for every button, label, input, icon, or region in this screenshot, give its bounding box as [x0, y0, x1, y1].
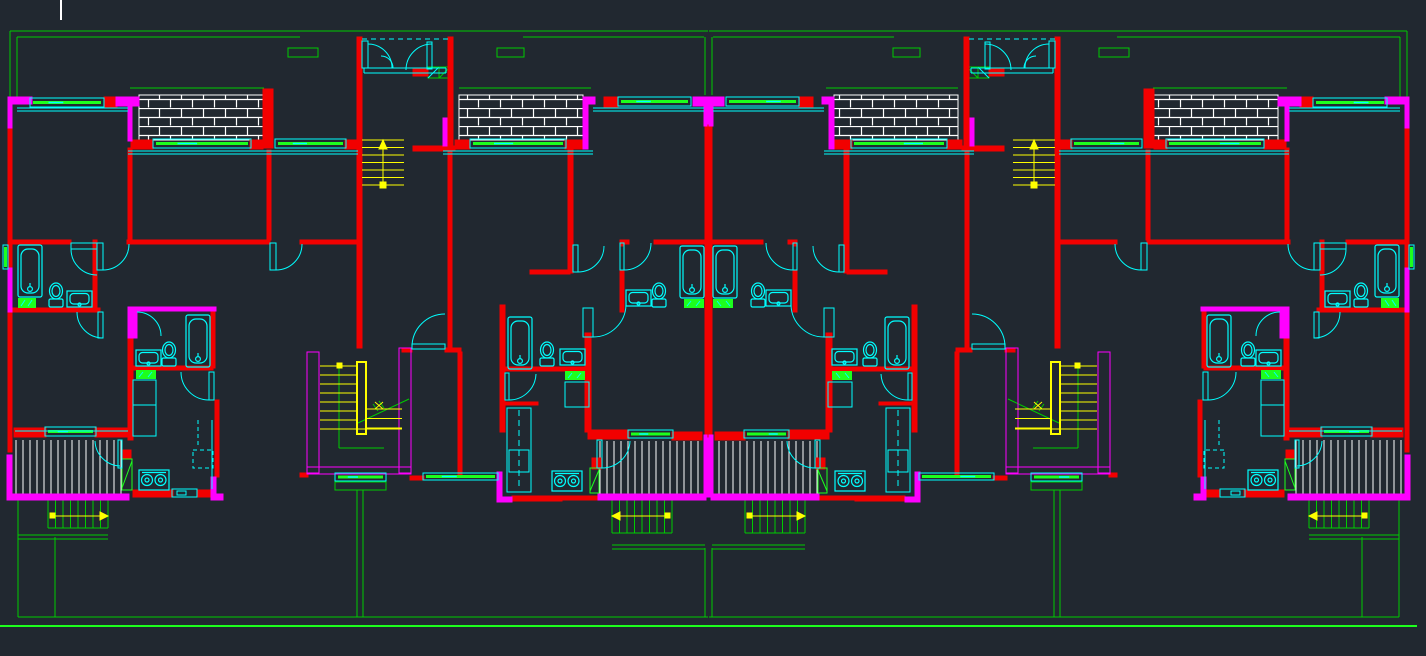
bath-mat — [136, 370, 156, 379]
walls-red-r — [505, 402, 538, 405]
walls-magenta-r — [128, 310, 137, 338]
doors-cyan-r — [573, 245, 578, 272]
windows-cyan-window — [628, 430, 673, 438]
doors-cyan-r — [98, 312, 103, 338]
bath-mat — [565, 371, 585, 380]
walls-magenta-r — [704, 435, 708, 497]
stove-fixture — [139, 470, 169, 490]
walls-magenta-r — [7, 455, 12, 499]
doors-cyan-p — [103, 244, 129, 270]
walls-red-r — [500, 305, 505, 432]
walls-red-r — [357, 37, 362, 348]
sink-fixture — [626, 290, 651, 306]
windows-cyan-window — [30, 98, 104, 107]
doors-cyan-p — [181, 372, 209, 400]
walls-red-r — [530, 270, 570, 274]
doors-cyan-p — [368, 44, 392, 68]
building-left-half — [0, 31, 709, 626]
sink-fixture — [67, 291, 92, 307]
walls-red-r — [263, 89, 273, 148]
walls-red-r — [620, 270, 624, 312]
site-boundary-green-r — [288, 48, 318, 57]
stove-fixture — [552, 471, 582, 491]
walls-red-r — [448, 148, 452, 348]
stairs-yellow-r — [665, 513, 670, 518]
walls-magenta-r — [8, 268, 12, 312]
walls-magenta-r — [8, 104, 12, 128]
hatch-patterns-hatch — [16, 440, 121, 494]
toilet-fixture — [49, 283, 63, 307]
cad-model-space-viewport[interactable] — [0, 0, 1426, 656]
walls-red-r — [10, 240, 71, 244]
walls-magenta-r — [128, 106, 132, 141]
walls-red-r — [455, 140, 470, 149]
layer-site-boundary-green — [0, 31, 709, 626]
walls-magenta-r — [583, 97, 588, 149]
stairs-yellow-r — [337, 363, 342, 368]
walls-magenta-r — [497, 497, 512, 502]
site-boundary-green-r — [497, 48, 524, 57]
walls-red-r — [512, 496, 562, 501]
walls-magenta-r — [693, 97, 709, 106]
walls-red-r — [8, 308, 100, 312]
mat-fill — [565, 371, 585, 380]
bath-mat — [684, 299, 704, 308]
walls-red-r — [14, 428, 46, 437]
walls-red-r — [560, 496, 598, 500]
walls-red-r — [445, 348, 461, 352]
walls-red-r — [448, 37, 453, 149]
stairs-yellow-p — [379, 140, 387, 149]
sink-fixture — [136, 350, 161, 366]
doors-cyan-r — [270, 243, 276, 270]
walls-magenta-r — [7, 494, 129, 500]
brick-hatch-balcony — [459, 95, 583, 140]
doors-cyan-p — [624, 243, 651, 270]
fixtures-cyan-r — [133, 380, 156, 405]
fixtures-cyan-l — [590, 470, 599, 491]
doors-cyan-r — [362, 41, 368, 68]
toilet-fixture — [652, 283, 666, 307]
doors-cyan-r — [620, 243, 624, 270]
walls-red-r — [127, 240, 270, 244]
fixtures-cyan-l — [122, 461, 132, 488]
bath-mat — [18, 298, 36, 308]
floor-plan-canvas[interactable] — [0, 0, 1426, 656]
windows-cyan-window — [618, 97, 691, 106]
mat-fill — [18, 298, 36, 308]
walls-red-r — [250, 140, 263, 149]
doors-cyan-r — [97, 243, 103, 270]
walls-red-r — [565, 140, 584, 149]
walls-magenta-r — [583, 97, 595, 104]
doors-cyan-p — [137, 312, 161, 336]
walls-magenta-r — [598, 494, 706, 500]
stairs-yellow-p — [612, 512, 620, 520]
walls-red-r — [654, 240, 707, 244]
stairs-yellow-r — [50, 513, 55, 518]
walls-red-r — [458, 352, 462, 476]
walls-magenta-r — [704, 106, 708, 126]
doors-cyan-p — [77, 312, 103, 338]
tub-fixture — [186, 315, 210, 367]
walls-magenta-r — [128, 307, 216, 311]
mat-fill — [136, 370, 156, 379]
walls-red-r — [128, 148, 132, 240]
fixtures-cyan-r — [193, 450, 213, 468]
doors-cyan-p — [406, 44, 432, 70]
stairs-yellow-p — [100, 512, 108, 520]
toilet-fixture — [162, 342, 176, 366]
tub-fixture — [680, 246, 704, 298]
doors-cyan-p — [381, 56, 393, 68]
site-boundary-green-r — [335, 482, 386, 490]
hatch-patterns-hatch — [600, 441, 698, 494]
windows-cyan-window — [275, 139, 346, 148]
mat-fill — [684, 299, 704, 308]
walls-red-r — [211, 310, 215, 368]
walls-red-r — [413, 68, 428, 76]
tub-fixture — [18, 245, 42, 297]
doors-cyan-r — [412, 344, 445, 349]
walls-magenta-r — [399, 348, 411, 473]
sink-fixture — [560, 349, 585, 365]
walls-magenta-r — [211, 494, 223, 500]
walls-red-r — [604, 97, 618, 107]
walls-red-r — [104, 97, 117, 107]
walls-red-r — [300, 240, 358, 244]
fixtures-cyan-r — [172, 489, 197, 497]
fixtures-cyan-r — [133, 405, 156, 436]
brick-hatch-balcony — [139, 95, 263, 140]
doors-cyan-p — [509, 374, 536, 400]
walls-red-r — [410, 476, 424, 480]
walls-magenta-r — [443, 118, 447, 146]
stairs-yellow-r — [380, 182, 386, 188]
doors-cyan-p — [412, 314, 445, 347]
tub-fixture — [508, 317, 532, 369]
walls-red-r — [131, 140, 153, 149]
walls-red-r — [568, 150, 573, 273]
doors-cyan-r — [427, 42, 432, 69]
walls-red-r — [588, 430, 629, 439]
walls-red-r — [95, 428, 133, 437]
walls-magenta-r — [307, 352, 319, 473]
doors-cyan-p — [578, 246, 604, 272]
doors-cyan-r — [209, 372, 214, 400]
walls-red-r — [345, 140, 358, 149]
building-right-half-mirrored — [708, 31, 1417, 626]
walls-red-r — [215, 400, 219, 477]
walls-red-r — [122, 450, 131, 459]
walls-red-r — [267, 150, 271, 240]
doors-cyan-p — [276, 244, 302, 270]
fixtures-cyan-r — [177, 491, 186, 495]
toilet-fixture — [540, 342, 554, 366]
walls-magenta-r — [116, 97, 139, 106]
walls-red-r — [133, 490, 173, 497]
windows-cyan-window — [3, 245, 8, 269]
doors-cyan-p — [602, 441, 630, 468]
walls-magenta-r — [8, 97, 32, 104]
walls-red-r — [672, 432, 702, 440]
stair-treads — [366, 409, 402, 428]
doors-cyan-r — [505, 373, 509, 400]
site-boundary-green-hatch — [48, 500, 108, 528]
walls-red-r — [197, 490, 212, 497]
